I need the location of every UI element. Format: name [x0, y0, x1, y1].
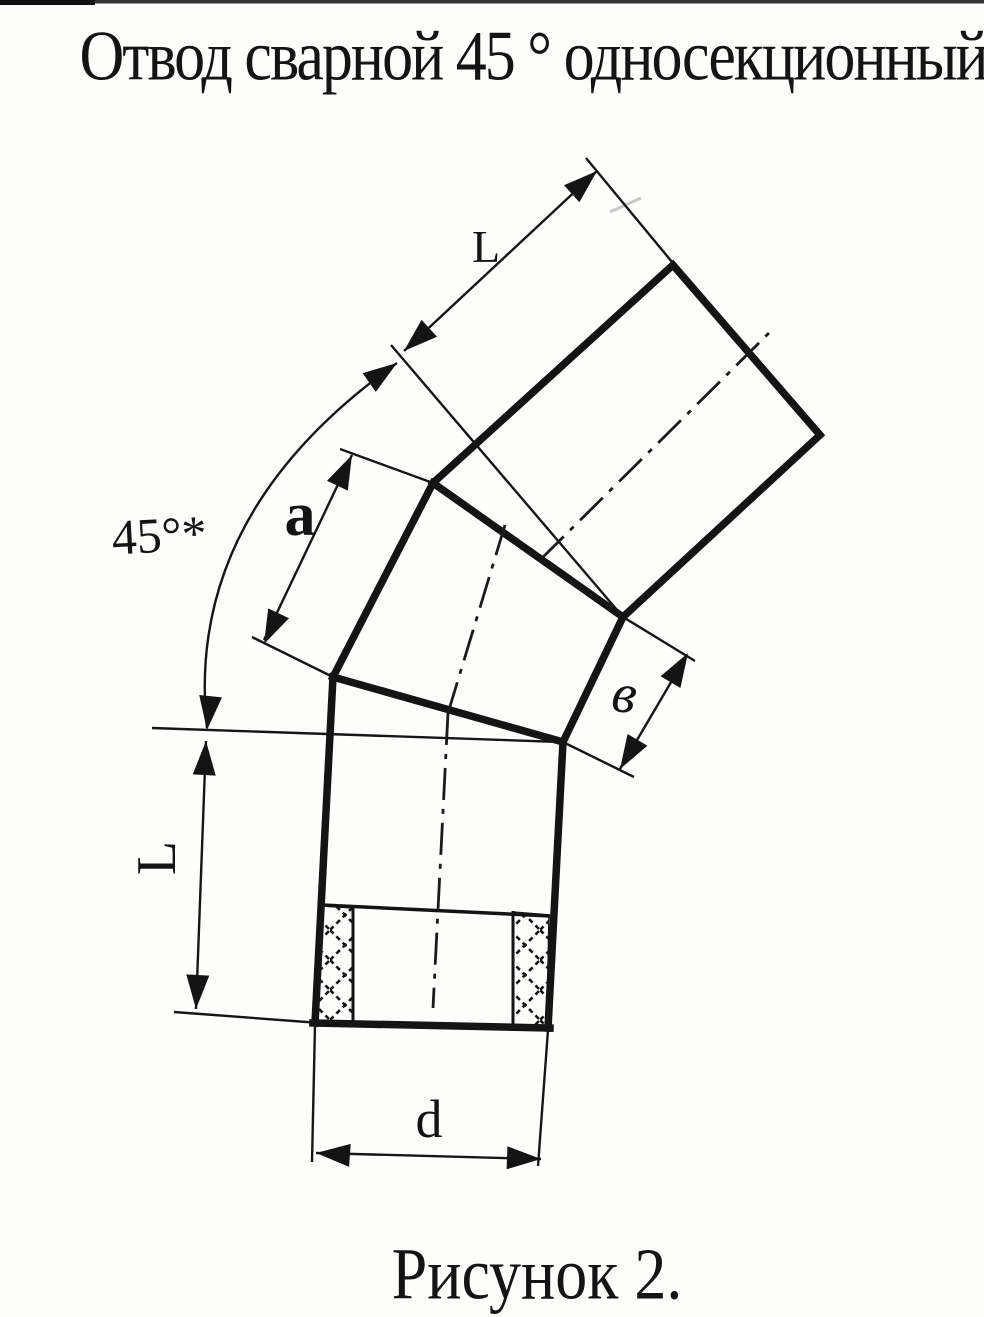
dim-L-top-ext1 [586, 158, 672, 262]
hatched-wall-left [318, 906, 353, 1022]
arrow-d-right [507, 1146, 541, 1169]
elbow-drawing: L 45°* a в L d [0, 0, 984, 1317]
arrow-v-bottom [620, 734, 647, 769]
dim-v-ext1 [623, 617, 695, 661]
dimension-label-texts: L 45°* a в L d [110, 221, 641, 1149]
dimension-lines [152, 158, 695, 1166]
arrow-L-left-bottom [186, 974, 209, 1009]
label-section-long-side: a [285, 481, 316, 549]
centerlines [433, 330, 772, 1008]
bore-back-edge [322, 905, 550, 916]
arrow-d-left [316, 1144, 351, 1167]
scan-artifacts [0, 0, 984, 212]
dim-L-left-line [196, 741, 206, 1009]
upper-section-outline [433, 265, 820, 617]
label-bend-angle: 45°* [110, 505, 208, 566]
dim-L-top-line [404, 171, 597, 351]
arrow-L-left-top [193, 741, 216, 776]
dim-d-ext-left [312, 1025, 315, 1162]
centerline-middle [448, 525, 505, 713]
hatched-wall-right [513, 912, 549, 1027]
arrow-arc-bottom [199, 695, 222, 730]
label-upper-length: L [472, 221, 500, 272]
dim-L-left-ext-top [152, 728, 561, 742]
arrow-v-top [661, 653, 688, 688]
scanned-page: Отвод сварной 45 ° односекционный [0, 0, 984, 1317]
dim-L-left-ext-bottom [174, 1012, 320, 1023]
arrow-a-bottom [264, 608, 289, 644]
lower-section-right-edge [548, 742, 563, 1028]
arrow-a-top [327, 455, 352, 491]
label-lower-length: L [126, 841, 188, 875]
dim-a-ext1 [340, 449, 433, 483]
middle-section-left-edge [333, 483, 433, 677]
pipe-wall-section-cut [318, 905, 550, 1027]
centerline-upper [541, 330, 772, 559]
figure-caption: Рисунок 2. [392, 1232, 683, 1317]
label-section-short-side: в [608, 662, 641, 727]
pipe-outline [313, 265, 820, 1028]
arrow-arc-top [363, 363, 397, 392]
dim-d-ext-right [538, 1030, 548, 1166]
weld-joint-upper [433, 483, 623, 617]
centerline-lower [433, 713, 448, 1008]
label-pipe-diameter: d [416, 1089, 443, 1149]
